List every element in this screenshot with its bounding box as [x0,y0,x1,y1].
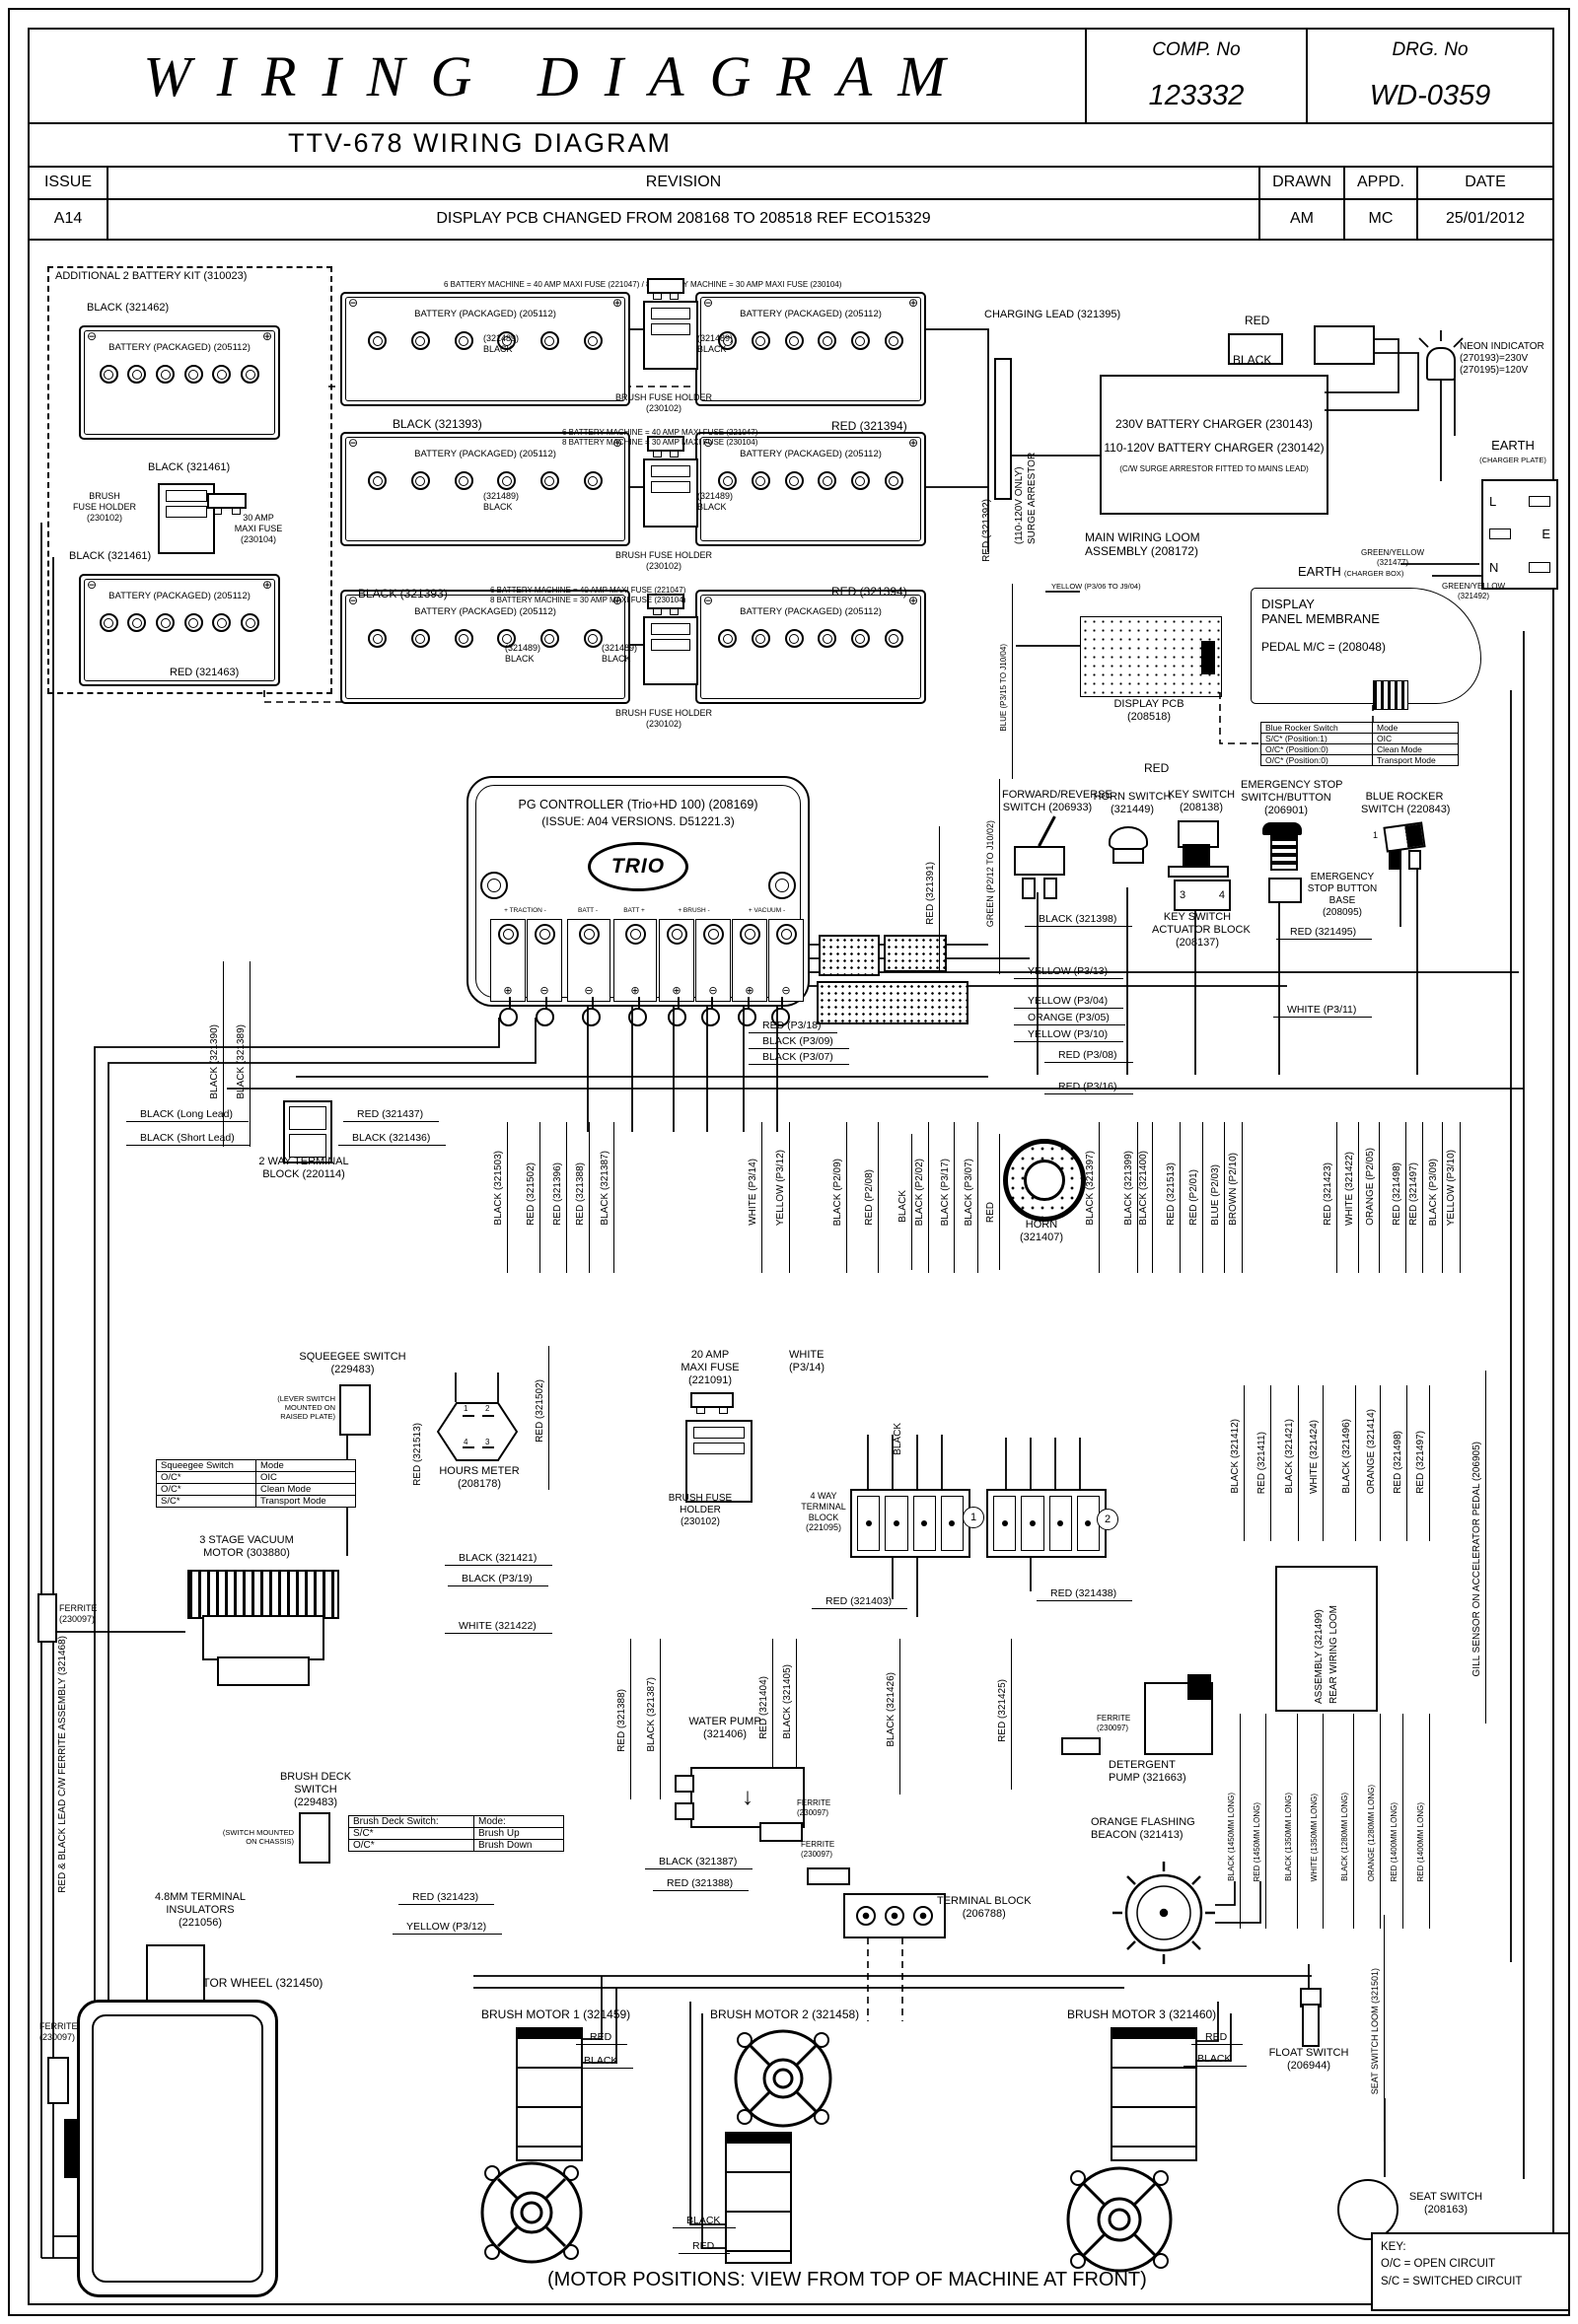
battery-label: BATTERY (PACKAGED) (205112) [697,606,924,617]
wire-label-vertical: BLACK (P3/09) [1428,1132,1439,1226]
wire-label-vertical: RED (321513) [412,1395,423,1486]
ferrite-label: FERRITE(230097) [1097,1714,1130,1732]
horn-icon [1003,1139,1086,1222]
wire-label-vertical: RED (321502) [526,1132,537,1226]
brush-motor-2-label: BRUSH MOTOR 2 (321458) [710,2007,859,2021]
ferrite-label: FERRITE(230097) [801,1840,834,1859]
key-switch-body [1183,844,1210,866]
blue-rocker-icon [1383,821,1425,852]
brush-deck-switch-icon [299,1812,330,1864]
beacon-label: ORANGE FLASHINGBEACON (321413) [1091,1816,1195,1842]
terminal-block-206788-label: TERMINAL BLOCK(206788) [937,1895,1032,1921]
wire-label: YELLOW (P3/13) [1028,965,1108,977]
controller-terminal: ⊖ [695,919,731,1002]
wire-label-vertical: WHITE (P3/14) [748,1132,758,1226]
wire-label: (321489)BLACK [483,491,519,513]
wire-label-vertical: GREEN (P2/12 TO J10/02) [986,789,996,927]
brush-motor-3-label: BRUSH MOTOR 3 (321460) [1067,2007,1216,2021]
rocker-leg [1408,850,1421,870]
forward-reverse-switch-label: FORWARD/REVERSESWITCH (206933) [1002,789,1093,814]
wire-label-vertical: BLACK (P2/02) [914,1132,925,1226]
pos-terminal-icon: ⊕ [262,578,272,592]
two-way-terminal-block-icon [283,1100,332,1163]
wire-label-vertical: BLACK (321421) [1284,1395,1295,1494]
wire-label: RED (321403) [825,1595,892,1607]
revision-data-row: A14 DISPLAY PCB CHANGED FROM 208168 TO 2… [28,198,1554,241]
forward-reverse-switch-icon [1014,846,1065,876]
trio-logo: TRIO [588,842,688,891]
controller-terminal: ⊕ [659,919,694,1002]
screw-icon [768,872,796,899]
wire-label: BLACK (P3/09) [762,1035,833,1047]
key-legend-box: KEY: O/C = OPEN CIRCUIT S/C = SWITCHED C… [1371,2232,1570,2311]
battery-terminals [697,471,924,490]
detergent-pump-label: DETERGENTPUMP (321663) [1109,1759,1186,1785]
controller-terminal: ⊕ [613,919,657,1002]
wire-label-vertical: RED (321498) [1393,1395,1403,1494]
ferrite-label: FERRITE(230097) [39,2021,78,2043]
four-way-terminal-block-1 [850,1489,970,1558]
wire-label: RED [1144,761,1169,775]
brush-deck-switch-note: (SWITCH MOUNTEDON CHASSIS) [215,1828,294,1846]
wire-label-vertical: RED (321388) [616,1649,627,1752]
brush-motor-3-body [1111,2027,1197,2161]
wire-label: RED [590,2031,611,2043]
revision-header-drawn: DRAWN [1260,166,1345,198]
wire-label-vertical: RED (321502) [535,1356,545,1443]
wire-label-vertical: BLACK [893,1398,903,1455]
motor-wheel-icon [77,2000,278,2297]
key-line: S/C = SWITCHED CIRCUIT [1381,2274,1560,2290]
wire-label: BLACK [686,2215,720,2226]
revision-drawn: AM [1260,198,1345,239]
fuse-holder-icon [643,458,698,528]
battery-terminals [81,613,278,632]
wire-label-vertical: BROWN (P2/10) [1228,1132,1239,1226]
ring-terminal-icon [738,1008,756,1026]
wire-label-vertical: BLACK (321496) [1341,1395,1352,1494]
wire-label: YELLOW (P3/10) [1028,1028,1108,1040]
subtitle-band: TTV-678 WIRING DIAGRAM [28,120,1554,168]
wire-label: BLACK [584,2055,617,2067]
revision-header-issue: ISSUE [30,166,108,198]
emergency-stop-label: EMERGENCY STOPSWITCH/BUTTON(206901) [1241,779,1331,818]
neon-indicator-label: NEON INDICATOR(270193)=230V(270195)=120V [1460,341,1544,377]
ring-terminal-icon [668,1008,686,1026]
wire-label-vertical: ORANGE (321414) [1366,1395,1377,1494]
detergent-pump-cap [1187,1674,1211,1700]
battery-terminals [697,629,924,648]
vacuum-motor-label: 3 STAGE VACUUMMOTOR (303880) [187,1534,306,1560]
connector-block-icon [817,981,968,1024]
wire-label: RED (321394) [831,585,907,599]
motor-positions-note: (MOTOR POSITIONS: VIEW FROM TOP OF MACHI… [547,2268,1147,2291]
wire-label-vertical: RED (321425) [997,1649,1008,1742]
wire-label-vertical: RED (321391) [925,836,936,925]
brush-motor-2-gearbox-icon [730,2025,836,2132]
battery-label: BATTERY (PACKAGED) (205112) [81,591,278,601]
wire-label: RED (P3/16) [1058,1081,1117,1092]
controller-terminal: ⊖ [527,919,562,1002]
ferrite-icon [1061,1737,1101,1755]
left-edge-note: RED & BLACK LEAD C/W FERRITE ASSEMBLY (3… [57,1262,68,1893]
wire-label: RED (321437) [357,1108,423,1120]
revision-text: DISPLAY PCB CHANGED FROM 208168 TO 20851… [108,198,1260,239]
squeegee-switch-icon [339,1384,371,1436]
wire-label: ORANGE (P3/05) [1028,1012,1110,1023]
wire-label-vertical: RED (321497) [1415,1395,1426,1494]
wire-label-vertical: RED (321388) [575,1132,586,1226]
battery-terminals [81,365,278,384]
switch-leg [1043,878,1057,899]
pump-port [675,1775,694,1793]
squeegee-mode-table: Squeegee SwitchMode O/C*OIC O/C*Clean Mo… [156,1459,356,1508]
fuse-holder-icon [643,616,698,685]
estop-base-icon [1268,878,1302,903]
ring-terminal-icon [499,1008,518,1026]
battery-label: BATTERY (PACKAGED) (205112) [697,449,924,459]
wire-label: YELLOW (P3/04) [1028,995,1108,1007]
fuse-note: 6 BATTERY MACHINE = 40 AMP MAXI FUSE (22… [490,586,685,604]
wire-label: BLACK [1233,353,1271,367]
wire-label-vertical: WHITE (321424) [1309,1395,1320,1494]
neg-terminal-icon: ⊖ [348,296,358,310]
wire-label-vertical: RED (321392) [981,414,992,562]
wire-label: YELLOW (P3/06 TO J9/04) [1051,582,1141,591]
wire-label-vertical: BLACK (321390) [209,971,220,1099]
terminal-group-label: + VACUUM - [732,907,802,915]
wire-label: BLACK (321462) [87,302,169,315]
ring-terminal-icon [701,1008,720,1026]
switch-leg [1022,878,1036,899]
wire-label: RED (321394) [831,419,907,433]
wire-label-vertical: BLACK (321426) [886,1649,897,1747]
surge-arrestor-label: (110-120V ONLY)SURGE ARRESTOR [1014,387,1038,544]
drg-no-label: DRG. No [1392,39,1468,61]
ring-terminal-icon [536,1008,554,1026]
horn-switch-label: HORN SWITCH(321449) [1093,791,1172,816]
wire-label: BLACK (321461) [69,550,151,563]
connector-block-icon [884,935,947,972]
vacuum-motor-base [217,1656,310,1686]
wire-label-vertical: ORANGE (P2/05) [1365,1132,1376,1226]
horn-switch-base [1112,848,1144,864]
wiring-diagram-page: WIRING DIAGRAM COMP. No 123332 DRG. No W… [0,0,1578,2324]
wire-label: BLACK (P3/07) [762,1051,833,1063]
two-way-terminal-block-label: 2 WAY TERMINALBLOCK (220114) [247,1156,361,1181]
battery-box: ⊖ ⊕ BATTERY (PACKAGED) (205112) [79,325,280,440]
wire-label-vertical: RED (321498) [1392,1132,1402,1226]
comp-no-cell: COMP. No 123332 [1085,30,1306,122]
wire-label: (321489)BLACK [697,491,733,513]
controller-terminal: ⊖ [567,919,610,1002]
controller-issue: (ISSUE: A04 VERSIONS. D51221.3) [468,814,808,828]
wire-label-vertical: BLUE (P2/03) [1210,1132,1221,1226]
terminal-group-label: + BRUSH - [659,907,729,915]
battery-label: BATTERY (PACKAGED) (205112) [342,309,628,319]
wire-label: BLACK (Short Lead) [140,1132,235,1144]
battery-box: ⊖ ⊕ BATTERY (PACKAGED) (205112) [340,590,630,704]
wire-label: BLACK (321421) [459,1552,537,1564]
wire-label: BLACK (Long Lead) [140,1108,233,1120]
battery-label: BATTERY (PACKAGED) (205112) [697,309,924,319]
key-actuator-block-icon: 3 4 [1174,880,1231,911]
revision-appd: MC [1345,198,1418,239]
ferrite-icon [759,1822,803,1842]
charging-lead-label: CHARGING LEAD (321395) [984,309,1120,321]
wire-label-vertical: RED [985,1144,996,1223]
charger-230v-label: 230V BATTERY CHARGER (230143) [1115,417,1313,431]
brush-fuse-holder-label: BRUSH FUSE HOLDER(230102) [606,550,722,572]
revision-header-revision: REVISION [108,166,1260,198]
battery-label: BATTERY (PACKAGED) (205112) [81,342,278,353]
terminal-group-label: BATT + [613,907,655,915]
mains-n: N [1489,560,1498,575]
page-title: WIRING DIAGRAM [30,30,1085,122]
brush-deck-switch-label: BRUSH DECKSWITCH(229483) [268,1771,363,1810]
revision-issue: A14 [30,198,108,239]
battery-terminals [342,629,628,648]
rocker-position-label: 1 [1373,830,1378,841]
wire-label: RED (321495) [1290,926,1356,938]
revision-header-date: DATE [1418,166,1552,198]
wire-label: RED (321388) [667,1877,733,1889]
gill-sensor-label: GILL SENSOR ON ACCELERATOR PEDAL (206905… [1471,1380,1482,1676]
neg-terminal-icon: ⊖ [87,329,97,343]
wire-label-vertical: BLACK (321389) [236,971,247,1099]
wire-label-vertical: BLACK (P2/09) [832,1132,843,1226]
wire-label: WHITE (321422) [459,1620,537,1632]
wire-label-vertical: BLACK (321387) [646,1649,657,1752]
controller-terminal: ⊕ [490,919,526,1002]
key-switch-label: KEY SWITCH(208138) [1164,789,1239,814]
fuse-note: 6 BATTERY MACHINE = 40 AMP MAXI FUSE (22… [444,280,841,290]
display-panel-membrane: DISPLAY PANEL MEMBRANE PEDAL M/C = (2080… [1251,588,1481,704]
squeegee-switch-label: SQUEEGEE SWITCH(229483) [296,1351,409,1376]
seat-switch-icon [1337,2179,1399,2240]
wire-label: RED (321463) [170,667,239,679]
water-pump-icon: ↓ [690,1767,805,1828]
four-way-terminal-block-2 [986,1489,1107,1558]
battery-label: BATTERY (PACKAGED) (205112) [342,606,628,617]
rocker-leg [1389,850,1401,870]
ferrite-label: FERRITE(230097) [797,1798,830,1817]
title-block: WIRING DIAGRAM COMP. No 123332 DRG. No W… [28,28,1554,124]
wire-label: BLACK (321398) [1039,913,1116,925]
terminal-block-206788-icon [843,1893,946,1938]
wire-label-vertical: BLACK [897,1144,908,1223]
float-switch-label: FLOAT SWITCH(206944) [1255,2047,1363,2073]
four-way-terminal-label: 4 WAYTERMINALBLOCK(221095) [799,1491,848,1533]
pos-terminal-icon: ⊕ [908,296,918,310]
terminal-insulators-label: 4.8MM TERMINALINSULATORS(221056) [148,1891,252,1931]
wire-label: RED [692,2240,714,2252]
brush-motor-1-gearbox-icon [476,2157,587,2268]
hours-meter-pin: 4 [464,1438,467,1447]
motor-wheel-stem [146,1944,205,2002]
rear-wiring-loom-box: ASSEMBLY (321499)REAR WIRING LOOM [1275,1566,1378,1712]
pos-terminal-icon: ⊕ [612,296,622,310]
blue-rocker-mode-table: Blue Rocker SwitchMode S/C* (Position:1)… [1260,722,1459,766]
wire-label: YELLOW (P3/12) [406,1921,486,1933]
pos-terminal-icon: ⊕ [908,594,918,607]
ring-terminal-icon [582,1008,601,1026]
block-number-2: 2 [1097,1509,1118,1530]
fuse-note: 6 BATTERY MACHINE = 40 AMP MAXI FUSE (22… [562,428,757,447]
wire-label: RED (P3/18) [762,1020,822,1031]
estop-base-label: EMERGENCYSTOP BUTTONBASE(208095) [1304,872,1381,919]
wire-label-vertical: RED (321411) [1256,1395,1267,1494]
controller-terminal: ⊕ [732,919,767,1002]
wire-label: WHITE (P3/11) [1287,1004,1356,1016]
wire-label: RED (321438) [1050,1587,1116,1599]
actuator-pin-3: 3 [1180,889,1185,901]
neg-terminal-icon: ⊖ [348,436,358,450]
battery-box: ⊖ ⊕ BATTERY (PACKAGED) (205112) [695,432,926,546]
wire-label: (321489)BLACK [602,643,637,665]
wire-label: (321489)BLACK [697,333,733,355]
wire-label-vertical: RED (321497) [1408,1132,1419,1226]
wire-label-vertical: BLACK (321400) [1138,1132,1149,1226]
revision-date: 25/01/2012 [1418,198,1552,239]
wire-label-vertical: BLACK (321399) [1123,1132,1134,1226]
brush-motor-3-gearbox-icon [1061,2161,1178,2278]
ferrite-icon [47,2057,69,2104]
brush-fuse-holder-label: BRUSH FUSE HOLDER(230102) [606,708,722,730]
wire-label-vertical: RED (P2/08) [864,1132,875,1226]
terminal-group-label: BATT - [567,907,609,915]
wire-label-vertical: RED (321513) [1166,1132,1177,1226]
wire-label-vertical: RED (321423) [1323,1132,1333,1226]
controller-title: PG CONTROLLER (Trio+HD 100) (208169) [468,798,808,811]
wire-length-label: RED (1400MM LONG) [1417,1724,1426,1881]
wire-label-vertical: RED (P2/01) [1188,1132,1199,1226]
revision-header-appd: APPD. [1345,166,1418,198]
wire-label: RED (P3/08) [1058,1049,1117,1061]
orange-flashing-beacon-icon [1107,1856,1221,1970]
ribbon-cable-icon [1373,680,1408,710]
maxi-fuse-icon [647,278,684,294]
maxi-fuse-20-label: 20 AMPMAXI FUSE(221091) [671,1349,750,1388]
battery-charger-box: 230V BATTERY CHARGER (230143) 110-120V B… [1100,375,1328,515]
horn-label: HORN(321407) [994,1219,1089,1244]
brush-fuse-holder-label: BRUSH FUSEHOLDER(230102) [653,1493,748,1528]
key-title: KEY: [1381,2239,1560,2256]
vacuum-motor-icon [187,1570,339,1619]
diagram-subtitle: TTV-678 WIRING DIAGRAM [288,128,672,159]
membrane-line: PEDAL M/C = (208048) [1261,640,1470,654]
key-switch-plate [1168,866,1229,878]
actuator-pin-4: 4 [1219,889,1225,901]
wire-length-label: BLACK (1450MM LONG) [1228,1724,1237,1881]
wire-label-vertical: BLACK (321412) [1230,1395,1241,1494]
ring-terminal-icon [628,1008,647,1026]
fuse-holder-icon [685,1420,753,1503]
wire-length-label: RED (1450MM LONG) [1254,1724,1262,1881]
brush-motor-2-body [725,2132,792,2264]
terminal-group-label: + TRACTION - [490,907,560,915]
drg-no-cell: DRG. No WD-0359 [1306,30,1552,122]
screw-icon [480,872,508,899]
ferrite-icon [807,1867,850,1885]
wire-label: BLACK (321436) [352,1132,430,1144]
neg-terminal-icon: ⊖ [703,296,713,310]
estop-cap-icon [1262,822,1302,835]
neg-terminal-icon: ⊖ [703,594,713,607]
membrane-line: DISPLAY [1261,597,1470,611]
wire-length-label: BLACK (1350MM LONG) [1285,1724,1294,1881]
water-pump-label: WATER PUMP(321406) [671,1716,779,1741]
charger-note: (C/W SURGE ARRESTOR FITTED TO MAINS LEAD… [1119,464,1309,473]
wire-length-label: BLACK (1280MM LONG) [1341,1724,1350,1881]
wire-label: (321489)BLACK [505,643,540,665]
neon-indicator-icon [1426,347,1456,381]
float-switch-icon [1302,2004,1320,2047]
wire-label-vertical: BLACK (321397) [1085,1132,1096,1226]
comp-no-value: 123332 [1149,80,1245,112]
wire-label-vertical: RED (321396) [552,1132,563,1226]
maxi-fuse-label: 30 AMPMAXI FUSE(230104) [219,513,298,544]
squeegee-switch-note: (LEVER SWITCHMOUNTED ONRAISED PLATE) [254,1394,335,1421]
fuse-holder-icon [643,301,698,370]
wire-label: (321489)BLACK [483,333,519,355]
key-actuator-label: KEY SWITCHACTUATOR BLOCK(208137) [1152,911,1243,951]
earth-box-label: EARTH (CHARGER BOX) [1298,564,1403,580]
display-pcb-label: DISPLAY PCB(208518) [1085,698,1213,724]
wire-label: WHITE(P3/14) [789,1349,825,1374]
hours-meter-pin: 2 [485,1404,489,1414]
wire-label-vertical: WHITE (321422) [1344,1132,1355,1226]
maxi-fuse-icon [207,493,247,509]
display-pcb-icon [1080,616,1222,697]
wire-label-vertical: BLUE (P3/15 TO J10/04) [1000,594,1009,732]
wire-length-label: ORANGE (1280MM LONG) [1368,1724,1377,1881]
wire-label: RED (321423) [412,1891,478,1903]
brush-motor-1-body [516,2027,583,2161]
wire-label-vertical: BLACK (P3/07) [964,1132,974,1226]
brush-fuse-holder-label: BRUSH FUSE HOLDER(230102) [606,392,722,414]
hours-meter-label: HOURS METER(208178) [432,1465,527,1491]
battery-terminals [342,471,628,490]
pos-terminal-icon: ⊕ [262,329,272,343]
wire-label: RED [1205,2031,1227,2043]
wire-label: BLACK (321393) [393,417,482,431]
neg-terminal-icon: ⊖ [87,578,97,592]
battery-box: ⊖ ⊕ BATTERY (PACKAGED) (205112) [340,432,630,546]
pos-terminal-icon: ⊕ [908,436,918,450]
estop-stem-icon [1270,835,1298,871]
hours-meter-pin: 1 [464,1404,467,1414]
seat-switch-label: SEAT SWITCH(208163) [1399,2191,1493,2217]
maxi-fuse-icon [690,1392,734,1408]
controller-terminal: ⊖ [768,919,804,1002]
battery-kit-title: ADDITIONAL 2 BATTERY KIT (310023) [55,270,247,283]
battery-label: BATTERY (PACKAGED) (205112) [342,449,628,459]
membrane-line: PANEL MEMBRANE [1261,611,1470,626]
wire-label: BLACK (321393) [358,587,448,600]
vacuum-motor-body [202,1615,324,1660]
wire-length-label: WHITE (1350MM LONG) [1311,1724,1320,1881]
wire-length-label: RED (1400MM LONG) [1391,1724,1399,1881]
connector-block-icon [819,935,880,976]
earth-plate-label: EARTH [1481,438,1544,454]
mains-lne-block: L E N [1481,479,1558,590]
wire-label-vertical: YELLOW (P3/10) [1446,1132,1457,1226]
earth-plate-sublabel: (CHARGER PLATE) [1471,456,1554,464]
brush-motor-1-label: BRUSH MOTOR 1 (321459) [481,2007,630,2021]
charging-lead-connector [1314,325,1375,365]
wire-label: BLACK (P3/19) [462,1573,533,1585]
